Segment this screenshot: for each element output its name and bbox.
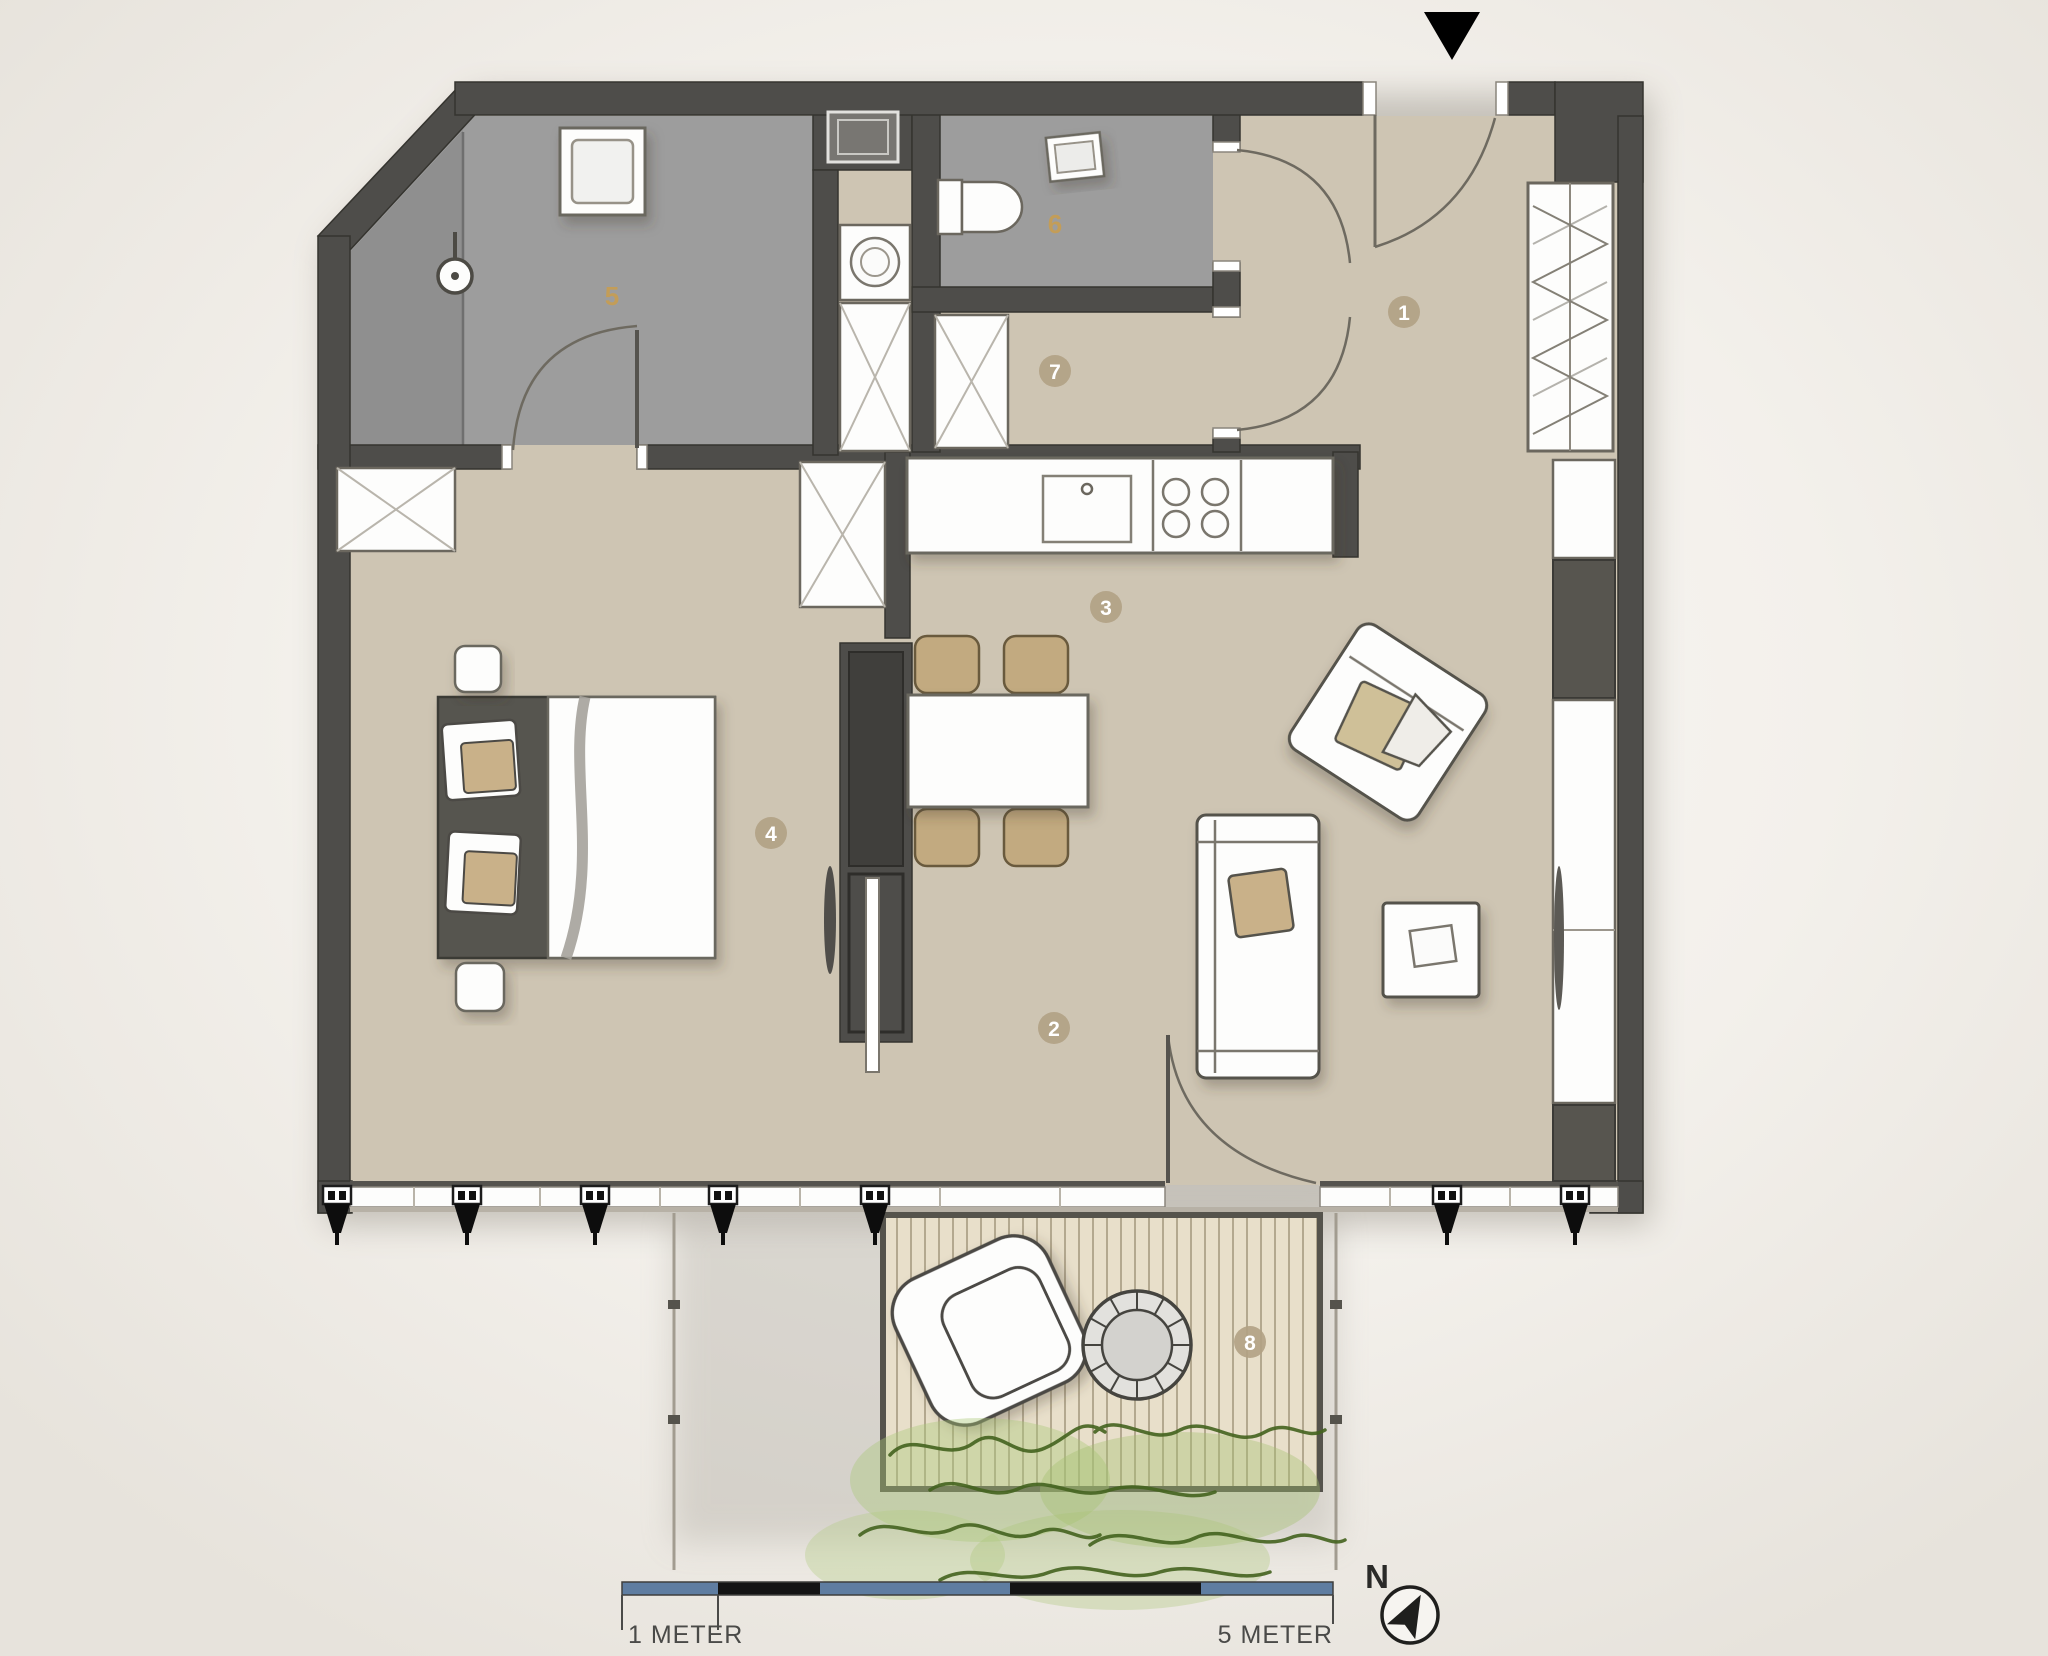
tv-icon: [824, 866, 836, 974]
scale-bar: 1 METER 5 METER: [622, 1582, 1333, 1649]
tv-icon: [1554, 866, 1564, 1010]
room-number-6: 6: [1048, 209, 1062, 239]
side-table-icon: [1383, 903, 1479, 997]
shaft: [1553, 460, 1615, 558]
washbasin-icon: [560, 128, 645, 215]
round-table-icon: [1083, 1291, 1191, 1399]
room-number: 8: [1244, 1332, 1256, 1355]
room-badge-3: 3: [1090, 591, 1122, 623]
north-compass-icon: N: [1365, 1558, 1438, 1643]
room-number-5: 5: [605, 281, 619, 311]
dining-table: [908, 695, 1088, 807]
room-badge-4: 4: [755, 817, 787, 849]
sliding-door: [866, 878, 879, 1072]
room-number: 1: [1398, 302, 1410, 325]
room-number: 4: [765, 823, 777, 846]
room-number: 7: [1049, 361, 1061, 384]
room-number: 3: [1100, 597, 1112, 620]
wardrobe-cross-icon: [840, 303, 910, 451]
tall-cabinet: [800, 462, 885, 607]
window-band: [350, 1181, 1618, 1212]
scale-start-label: 1 METER: [628, 1621, 743, 1649]
nightstand: [455, 646, 501, 692]
sink-icon: [1043, 476, 1131, 542]
bed-icon: [438, 697, 715, 958]
low-dark-cabinet: [1553, 1105, 1615, 1181]
storage-cabinet: [935, 315, 1008, 448]
scale-end-label: 5 METER: [1218, 1621, 1333, 1649]
pillow: [441, 720, 520, 801]
pillow: [445, 831, 521, 915]
room-badge-7: 7: [1039, 355, 1071, 387]
hanging-rail-icon: [1528, 183, 1613, 451]
floor-plan-canvas: 1 2 3 4 5 6 7 8 1 METER 5 METER N: [0, 0, 2048, 1656]
room-badge-8: 8: [1234, 1326, 1266, 1358]
sideboard: [1553, 700, 1615, 1103]
washing-machine-icon: [840, 225, 910, 300]
entrance-arrow-icon: [1424, 12, 1480, 60]
nightstand: [456, 963, 504, 1011]
north-label: N: [1365, 1558, 1389, 1595]
tall-dark-cabinet: [1553, 560, 1615, 698]
utility-niche: [828, 112, 910, 451]
sofa-icon: [1197, 815, 1319, 1078]
small-basin-icon: [1046, 132, 1104, 181]
plant-icon: [805, 1418, 1345, 1610]
room-badge-2: 2: [1038, 1012, 1070, 1044]
floor-plan: 1 2 3 4 5 6 7 8 1 METER 5 METER N: [0, 0, 2048, 1656]
room-number: 2: [1048, 1018, 1060, 1041]
toilet-icon: [938, 180, 1022, 234]
bedroom-wardrobe: [337, 468, 455, 551]
room-badge-1: 1: [1388, 296, 1420, 328]
